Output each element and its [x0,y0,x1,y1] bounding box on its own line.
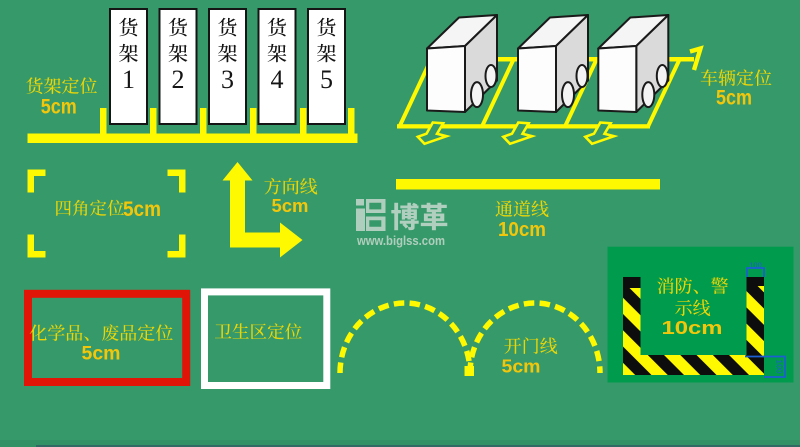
svg-text:5cm: 5cm [716,87,752,110]
svg-text:2: 2 [172,65,185,94]
svg-text:10cm: 10cm [662,317,723,338]
svg-text:100: 100 [749,261,762,270]
svg-text:4: 4 [271,65,284,94]
svg-text:5cm: 5cm [41,96,77,119]
svg-text:5: 5 [320,65,333,94]
svg-text:5cm: 5cm [82,343,121,365]
svg-text:10cm: 10cm [498,219,546,241]
svg-text:3: 3 [221,65,234,94]
svg-text:100: 100 [775,359,785,373]
svg-text:www.biglss.com: www.biglss.com [356,233,445,248]
svg-text:1: 1 [122,65,135,94]
svg-text:5cm: 5cm [272,195,309,216]
svg-text:5cm: 5cm [502,356,541,377]
svg-text:5cm: 5cm [123,198,161,221]
